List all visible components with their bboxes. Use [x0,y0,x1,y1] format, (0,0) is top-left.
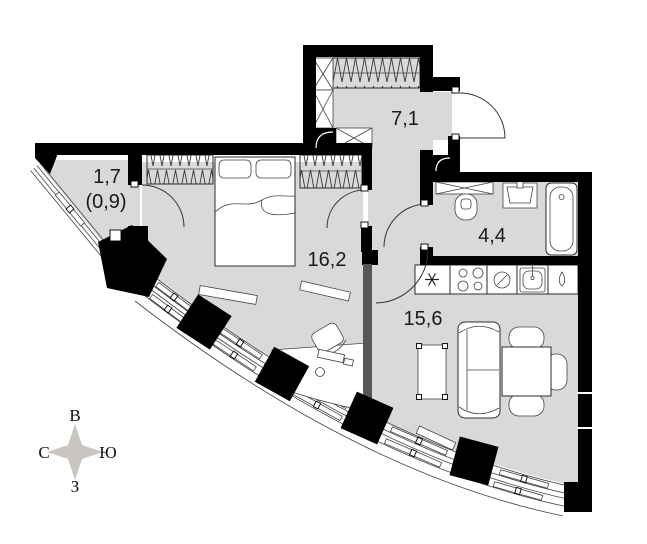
wall [362,250,378,265]
toilet-icon [455,194,477,220]
desk-lamp-icon [316,368,325,377]
door-frame [421,244,428,250]
balcony-reduced-area-label: (0,9) [85,191,126,213]
entrance-door-arc-icon [460,93,505,138]
compass-bottom-label: З [71,477,80,496]
chair-icon [509,394,544,416]
wall [433,172,592,182]
compass-left-label: С [38,443,49,462]
kitchen-sink-icon [520,265,545,292]
door-frame [110,230,121,241]
bedroom-area-label: 16,2 [308,249,347,271]
kitchen-area-label: 15,6 [404,308,443,330]
wall [420,256,592,265]
door-frame [452,134,459,140]
chair-icon [509,327,544,349]
compass-right-label: Ю [99,443,116,462]
coffee-table-icon [417,344,448,400]
bathroom-area-label: 4,4 [478,225,506,247]
wall-joint [577,427,593,429]
sofa-icon [458,322,500,418]
door-frame [421,200,428,206]
wall [303,45,433,57]
wall [578,172,592,512]
door-frame [452,87,459,93]
door-frame [131,181,138,187]
compass-rose-icon: В С Ю З [38,406,116,496]
compass-top-label: В [69,406,80,425]
wardrobe-icon [147,155,213,184]
bed-icon [215,157,295,266]
column-icon [564,482,592,512]
wall [420,45,433,92]
bathtub-icon [546,183,577,255]
hallway-area-label: 7,1 [391,108,419,130]
floor-plan-drawing: 1,7 (0,9) 7,1 16,2 4,4 15,6 В С Ю З [0,0,647,544]
shaft-x-icon [436,182,493,194]
wall [128,155,142,185]
wall [362,143,372,190]
floor-plan-page: 1,7 (0,9) 7,1 16,2 4,4 15,6 В С Ю З [0,0,647,544]
compass-star [47,424,103,480]
wall-joint [577,392,593,394]
wall [361,226,372,252]
partition-wall [363,264,372,404]
dining-table-icon [502,347,551,396]
door-frame [361,222,368,228]
riser-icon [313,128,336,150]
door-frame [361,185,368,191]
balcony-area-label: 1,7 [93,166,121,188]
wall [420,150,433,205]
wardrobe-icon [300,155,362,188]
riser-icon [433,156,452,173]
kitchen-counter-icon [415,265,578,294]
washbasin-icon [503,181,537,208]
